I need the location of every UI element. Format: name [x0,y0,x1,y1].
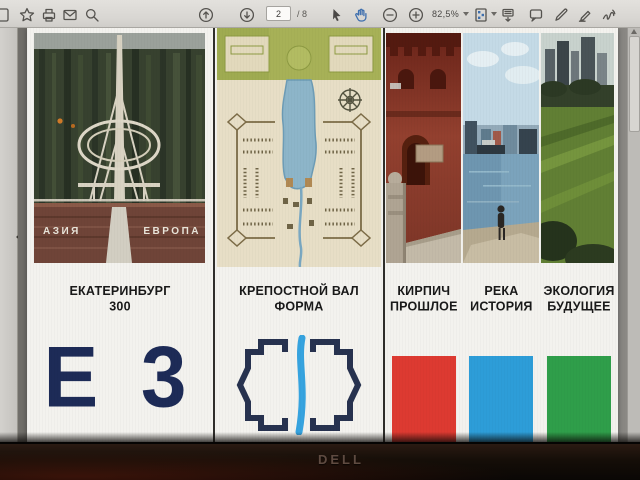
asia-label: АЗИЯ [43,226,81,237]
pdf-page: АЗИЯ ЕВРОПА ЕКАТЕРИНБУРГ 300 Е 3 [27,28,618,442]
slide-panel-concepts: КИРПИЧ ПРОШЛОЕ РЕКА ИСТОРИЯ [385,28,618,442]
red-swatch [392,356,456,444]
eco-city-photo [541,33,614,263]
select-cursor-icon[interactable] [328,6,345,23]
email-icon[interactable] [61,6,78,23]
panel2-title-line2: ФОРМА [215,299,383,315]
concept-river-title: РЕКА [463,283,541,299]
concept-river-subtitle: ИСТОРИЯ [463,299,541,315]
page-up-icon[interactable] [197,6,214,23]
viewer-gutter [18,28,27,442]
save-icon[interactable] [0,6,10,23]
eco-photo-art [541,33,614,263]
hand-tool-icon[interactable] [352,6,369,23]
scrollbar-up-arrow-icon[interactable] [631,29,637,34]
page-total-label: / 8 [297,9,307,19]
pdf-viewer-area: АЗИЯ ЕВРОПА ЕКАТЕРИНБУРГ 300 Е 3 [0,28,640,442]
concept-eco-subtitle: БУДУЩЕЕ [540,299,618,315]
concept-labels-row: КИРПИЧ ПРОШЛОЕ РЕКА ИСТОРИЯ [385,284,618,444]
zoom-level-label[interactable]: 82,5% [432,9,459,19]
star-icon[interactable] [18,6,35,23]
slide-panel-fortress: КРЕПОСТНОЙ ВАЛ ФОРМА [215,28,383,442]
panel1-title-line2: 300 [27,299,213,315]
print-icon[interactable] [40,6,57,23]
zoom-dropdown-caret[interactable] [463,12,469,16]
concept-brick: КИРПИЧ ПРОШЛОЕ [385,284,463,444]
search-icon[interactable] [83,6,100,23]
brick-tower-photo [386,33,461,263]
river-person-photo [463,33,539,263]
concept-brick-title: КИРПИЧ [385,283,463,299]
panel1-title: ЕКАТЕРИНБУРГ 300 [27,283,213,315]
fortress-wall-icon [236,335,362,435]
monitor-bezel: DELL [0,442,640,480]
scrollbar-thumb[interactable] [629,36,640,132]
concept-brick-subtitle: ПРОШЛОЕ [385,299,463,315]
panel2-title-line1: КРЕПОСТНОЙ ВАЛ [215,283,383,299]
slide-panel-ekaterinburg: АЗИЯ ЕВРОПА ЕКАТЕРИНБУРГ 300 Е 3 [27,28,213,442]
panel1-title-line1: ЕКАТЕРИНБУРГ [27,283,213,299]
pdf-toolbar: 2 / 8 82,5% [0,0,640,28]
concept-photos [386,33,617,263]
page-view-caret[interactable] [491,12,497,16]
zoom-in-icon[interactable] [407,6,424,23]
fortress-map-art [217,28,381,267]
river-photo-art [463,33,539,263]
concept-river: РЕКА ИСТОРИЯ [463,284,541,444]
concept-eco-title: ЭКОЛОГИЯ [540,283,618,299]
concept-eco: ЭКОЛОГИЯ БУДУЩЕЕ [540,284,618,444]
dell-logo: DELL [318,452,364,467]
comment-icon[interactable] [527,6,544,23]
brick-photo-art [386,33,461,263]
zoom-out-icon[interactable] [381,6,398,23]
europe-label: ЕВРОПА [143,226,201,237]
scrolling-mode-icon[interactable] [499,6,516,23]
page-down-icon[interactable] [238,6,255,23]
page-view-mode-icon[interactable] [472,6,489,23]
vertical-scrollbar[interactable] [627,28,640,442]
e3-logo: Е 3 [27,326,213,431]
panel2-title: КРЕПОСТНОЙ ВАЛ ФОРМА [215,283,383,315]
blue-swatch [469,356,533,444]
fortress-plan-map [217,28,381,267]
green-swatch [547,356,611,444]
page-number-input[interactable]: 2 [266,6,291,21]
draw-pencil-icon[interactable] [552,6,569,23]
monument-europe-asia-photo: АЗИЯ ЕВРОПА [34,33,205,263]
monitor-photo: 2 / 8 82,5% [0,0,640,480]
sign-icon[interactable] [600,6,617,23]
highlight-icon[interactable] [576,6,593,23]
